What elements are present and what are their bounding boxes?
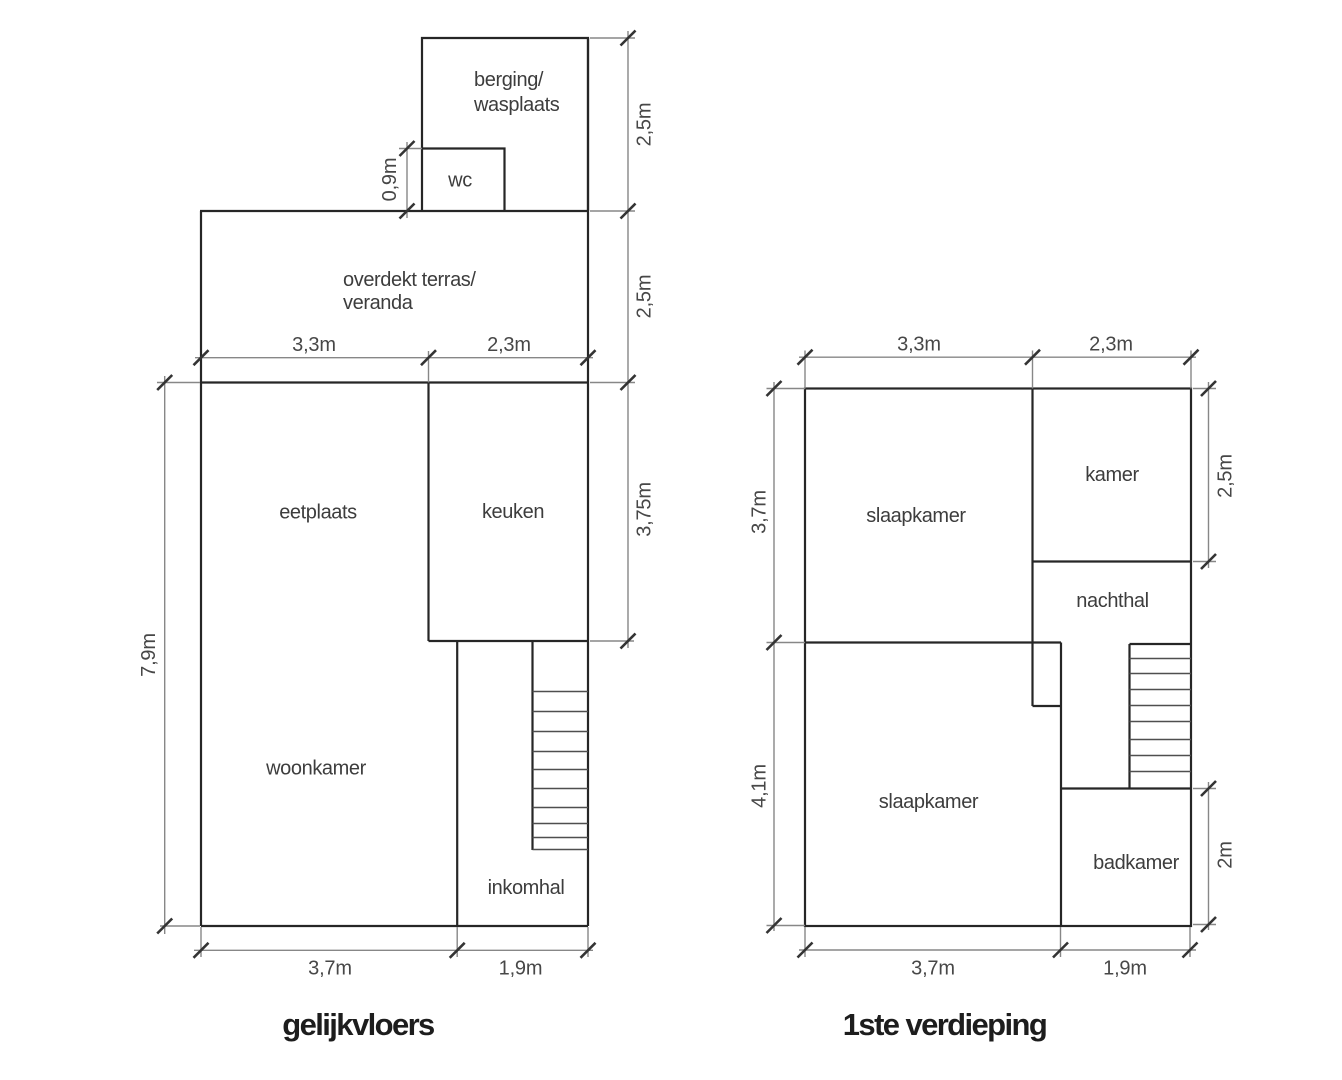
svg-text:1,9m: 1,9m [1103, 958, 1147, 980]
svg-text:wasplaats: wasplaats [473, 94, 560, 116]
svg-text:3,7m: 3,7m [911, 958, 955, 980]
svg-text:3,75m: 3,75m [634, 482, 656, 537]
svg-text:2,3m: 2,3m [1089, 334, 1133, 356]
svg-text:gelijkvloers: gelijkvloers [282, 1007, 434, 1042]
svg-text:keuken: keuken [482, 501, 544, 523]
svg-text:inkomhal: inkomhal [488, 877, 565, 899]
svg-text:veranda: veranda [343, 292, 414, 314]
svg-text:3,7m: 3,7m [308, 958, 352, 980]
svg-text:2m: 2m [1215, 841, 1237, 868]
svg-text:1ste verdieping: 1ste verdieping [843, 1007, 1046, 1042]
svg-text:slaapkamer: slaapkamer [879, 791, 979, 813]
svg-text:overdekt terras/: overdekt terras/ [343, 269, 476, 291]
svg-text:7,9m: 7,9m [138, 633, 160, 677]
svg-text:berging/: berging/ [474, 69, 544, 91]
svg-text:3,3m: 3,3m [897, 334, 941, 356]
svg-text:eetplaats: eetplaats [279, 502, 357, 524]
svg-text:kamer: kamer [1085, 464, 1139, 486]
svg-text:nachthal: nachthal [1076, 590, 1148, 612]
svg-text:wc: wc [447, 170, 472, 192]
svg-text:2,3m: 2,3m [487, 334, 531, 356]
svg-text:4,1m: 4,1m [749, 764, 771, 808]
svg-text:3,7m: 3,7m [749, 490, 771, 534]
svg-text:badkamer: badkamer [1093, 852, 1179, 874]
svg-text:2,5m: 2,5m [634, 275, 656, 319]
svg-text:2,5m: 2,5m [1215, 454, 1237, 498]
svg-text:0,9m: 0,9m [379, 158, 401, 202]
svg-text:2,5m: 2,5m [634, 103, 656, 147]
svg-text:1,9m: 1,9m [499, 958, 543, 980]
svg-text:3,3m: 3,3m [292, 334, 336, 356]
svg-text:slaapkamer: slaapkamer [866, 505, 966, 527]
svg-text:woonkamer: woonkamer [265, 758, 367, 780]
